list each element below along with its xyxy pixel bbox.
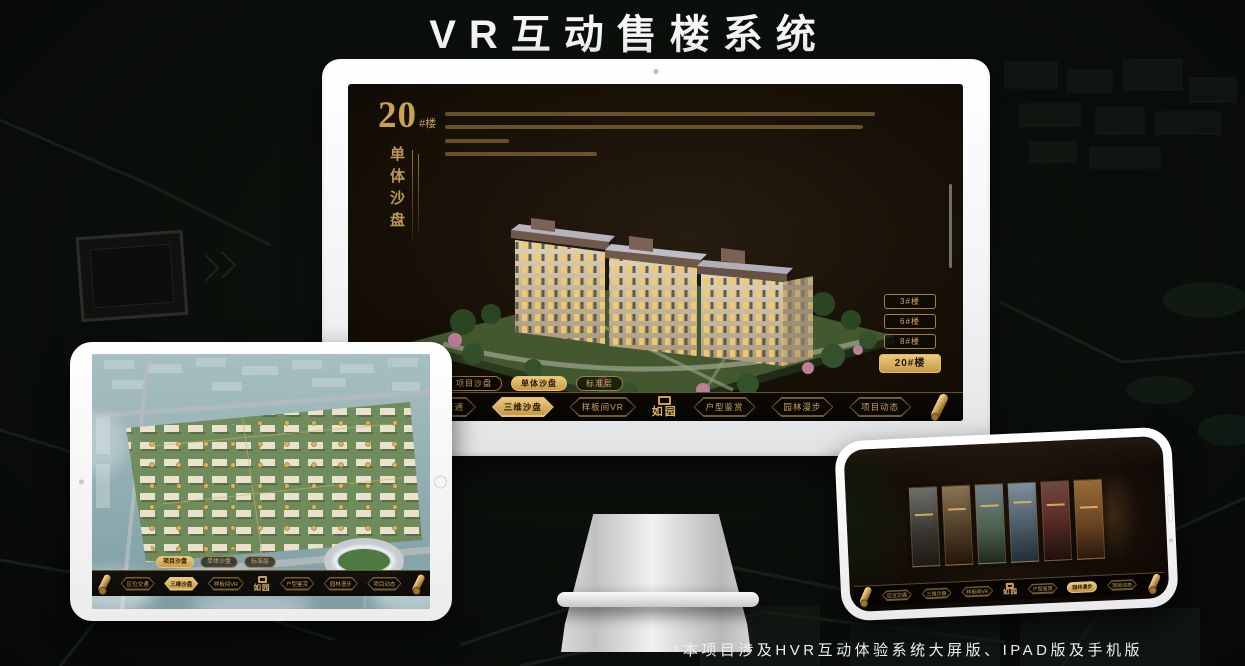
- scene-card-label: [947, 508, 965, 511]
- nav-item-garden-walk-active[interactable]: 园林漫步: [1067, 580, 1097, 592]
- nav-item-label: 样板间VR: [209, 578, 243, 590]
- brand-logo-text: 如园: [652, 407, 678, 418]
- nav-item-label: 项目动态: [850, 398, 910, 416]
- monitor-stand: [561, 514, 751, 652]
- scroll-handle-right[interactable]: [411, 573, 425, 595]
- scene-card-label: [1046, 503, 1064, 506]
- nav-item-garden-walk[interactable]: 园林漫步: [771, 397, 833, 417]
- tab-project-sandtable[interactable]: 项目沙盘: [446, 376, 502, 391]
- nav-item-label: 三维沙盘: [922, 588, 950, 598]
- scene-card[interactable]: [941, 485, 973, 566]
- tablet-screen: 项目沙盘 单体沙盘 标准层 区位交通 三维沙盘 样板间VR 如园 户型鉴赏 园林…: [92, 354, 430, 609]
- nav-item-label: 项目动态: [368, 578, 400, 590]
- phone-screen: 区位交通 三维沙盘 样板间VR 如园 户型鉴赏 园林漫步 项目动态: [843, 436, 1169, 612]
- nav-item-project-news[interactable]: 项目动态: [1107, 579, 1137, 591]
- brand-logo[interactable]: 如园: [1003, 583, 1019, 597]
- tab-project-sandtable-active[interactable]: 项目沙盘: [156, 556, 194, 568]
- nav-item-label: 户型鉴赏: [281, 578, 313, 590]
- tablet-device: 项目沙盘 单体沙盘 标准层 区位交通 三维沙盘 样板间VR 如园 户型鉴赏 园林…: [70, 342, 452, 621]
- description-text-line: [445, 112, 875, 116]
- scene-card[interactable]: [1040, 480, 1072, 561]
- page-title: VR互动售楼系统: [0, 2, 1245, 60]
- building-heading: 20#楼: [378, 94, 436, 137]
- floor-button-6[interactable]: 6#楼: [884, 314, 936, 329]
- tab-single-sandtable-active[interactable]: 单体沙盘: [511, 376, 567, 391]
- brand-logo[interactable]: 如园: [652, 396, 678, 418]
- scroll-handle-left[interactable]: [858, 585, 873, 608]
- building-number: 20: [378, 95, 417, 136]
- nav-item-label: 区位交通: [122, 578, 154, 590]
- scene-gallery: [908, 479, 1104, 568]
- nav-item-label: 户型鉴赏: [1028, 583, 1056, 593]
- floor-button-20-active[interactable]: 20#楼: [879, 354, 941, 373]
- monitor-stand-base: [557, 592, 759, 607]
- nav-item-label: 区位交通: [883, 590, 911, 600]
- scene-card[interactable]: [1007, 482, 1039, 563]
- nav-item-location-traffic[interactable]: 区位交通: [121, 577, 155, 591]
- scene-card[interactable]: [974, 483, 1006, 564]
- scroll-icon: [930, 392, 950, 420]
- nav-item-floorplan[interactable]: 户型鉴赏: [694, 397, 756, 417]
- scroll-icon: [411, 573, 426, 593]
- nav-item-label: 项目动态: [1108, 580, 1136, 590]
- tab-single-sandtable[interactable]: 单体沙盘: [200, 556, 238, 568]
- nav-item-project-news[interactable]: 项目动态: [367, 577, 401, 591]
- nav-item-label: 三维沙盘: [165, 578, 197, 590]
- nav-item-3d-sandtable[interactable]: 三维沙盘: [921, 587, 951, 599]
- tablet-bottom-nav: 区位交通 三维沙盘 样板间VR 如园 户型鉴赏 园林漫步 项目动态: [92, 570, 430, 596]
- nav-item-label: 园林漫步: [1068, 581, 1096, 591]
- scroll-icon: [859, 586, 873, 606]
- scene-card-label: [1013, 501, 1031, 504]
- building-number-unit: #楼: [419, 118, 436, 130]
- seal-icon: [258, 576, 267, 583]
- scene-card-label: [980, 504, 998, 507]
- brand-logo-text: 如园: [1003, 590, 1018, 597]
- nav-item-label: 户型鉴赏: [695, 398, 755, 416]
- seal-icon: [1006, 583, 1014, 589]
- nav-item-garden-walk[interactable]: 园林漫步: [324, 577, 358, 591]
- monitor-view-tabs: 项目沙盘 单体沙盘 标准层: [446, 376, 623, 391]
- scroll-handle-left[interactable]: [97, 573, 111, 595]
- scene-card[interactable]: [908, 486, 940, 567]
- scroll-icon: [1147, 573, 1161, 593]
- scene-card[interactable]: [1073, 479, 1105, 560]
- scroll-icon: [97, 573, 112, 593]
- phone-camera-icon: [1169, 538, 1173, 542]
- nav-item-model-room-vr[interactable]: 样板间VR: [570, 397, 636, 417]
- floor-button-group: 3#楼 6#楼 8#楼 20#楼: [876, 294, 944, 373]
- poster-stage: VR互动售楼系统 20#楼 单体沙盘: [0, 0, 1245, 666]
- screen-scrollbar[interactable]: [949, 184, 952, 268]
- seal-icon: [658, 396, 671, 405]
- scene-card-label: [914, 513, 932, 516]
- monitor-camera-icon: [654, 69, 659, 74]
- background-plaque: [77, 231, 186, 320]
- nav-item-model-room-vr[interactable]: 样板间VR: [208, 577, 244, 591]
- description-text-line: [445, 125, 863, 129]
- scroll-handle-right[interactable]: [1146, 572, 1161, 595]
- phone-notch: [1167, 495, 1173, 523]
- footnote-text: *本项目涉及HVR互动体验系统大屏版、IPAD版及手机版: [674, 639, 1143, 660]
- phone-device: 区位交通 三维沙盘 样板间VR 如园 户型鉴赏 园林漫步 项目动态: [834, 426, 1179, 621]
- nav-item-floorplan[interactable]: 户型鉴赏: [280, 577, 314, 591]
- nav-item-floorplan[interactable]: 户型鉴赏: [1027, 582, 1057, 594]
- nav-item-label: 园林漫步: [325, 578, 357, 590]
- scroll-handle-right[interactable]: [927, 392, 949, 421]
- nav-item-model-room-vr[interactable]: 样板间VR: [961, 585, 993, 597]
- nav-item-label: 三维沙盘: [493, 398, 553, 416]
- tablet-camera-icon: [79, 479, 84, 484]
- floor-button-3[interactable]: 3#楼: [884, 294, 936, 309]
- tab-standard-floor[interactable]: 标准层: [244, 556, 276, 568]
- nav-item-project-news[interactable]: 项目动态: [849, 397, 911, 417]
- nav-item-label: 样板间VR: [571, 398, 635, 416]
- nav-item-label: 园林漫步: [772, 398, 832, 416]
- tablet-view-tabs: 项目沙盘 单体沙盘 标准层: [156, 556, 276, 568]
- scene-card-label: [1079, 506, 1097, 509]
- nav-item-location-traffic[interactable]: 区位交通: [882, 589, 912, 601]
- description-text-line: [445, 139, 509, 143]
- nav-item-label: 样板间VR: [962, 586, 992, 596]
- floor-button-8[interactable]: 8#楼: [884, 334, 936, 349]
- tablet-home-button[interactable]: [434, 475, 447, 488]
- brand-logo[interactable]: 如园: [254, 576, 271, 592]
- nav-item-3d-sandtable-active[interactable]: 三维沙盘: [492, 397, 554, 417]
- brand-logo-text: 如园: [254, 584, 271, 592]
- tab-standard-floor[interactable]: 标准层: [576, 376, 623, 391]
- building-render-3d[interactable]: [403, 144, 903, 404]
- nav-item-3d-sandtable-active[interactable]: 三维沙盘: [164, 577, 198, 591]
